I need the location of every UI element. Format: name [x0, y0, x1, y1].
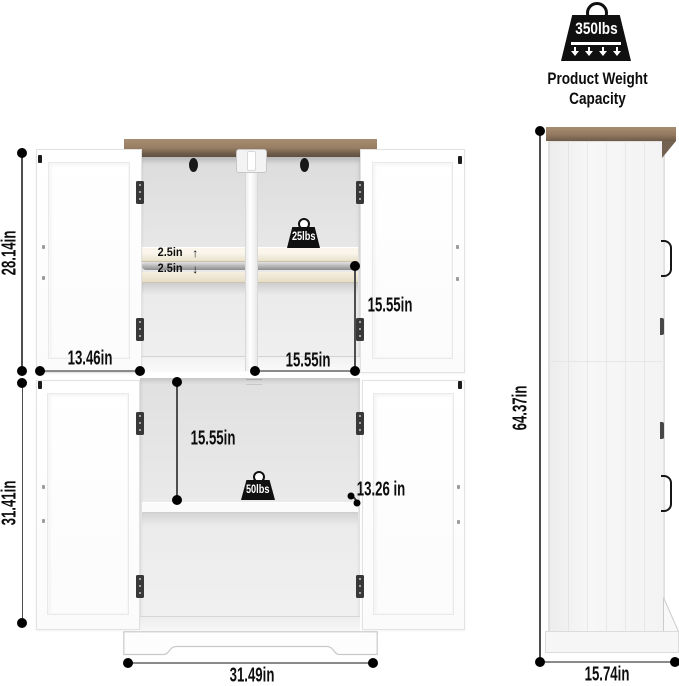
door-catch	[458, 156, 462, 164]
dim-dot	[17, 366, 27, 376]
door-catch	[38, 155, 42, 163]
far-door-handle-icon	[660, 422, 664, 439]
dim-dot	[670, 657, 679, 667]
divider-latch-slot	[247, 151, 256, 171]
upper-right-door-panel	[372, 162, 453, 359]
door-pin-hole	[456, 277, 459, 281]
door-pin-hole	[456, 245, 459, 249]
dim-dot	[17, 378, 27, 388]
side-base-plinth	[545, 631, 679, 653]
dim-upper-compartment-width-label: 15.55in	[274, 350, 342, 373]
dim-dot	[17, 148, 27, 158]
lower-left-door	[36, 380, 140, 630]
side-top-overhang-shadow	[662, 141, 677, 159]
lower-right-door	[362, 380, 465, 630]
hook-slot-icon	[189, 158, 198, 172]
dim-upper-height-label: 28.14in	[0, 219, 22, 287]
shelf-adjust-down-value: 2.5in	[158, 263, 183, 275]
shelf-adjust-down-row: 2.5in ↓	[157, 262, 198, 276]
door-pin-hole	[42, 245, 45, 249]
dim-total-height-label: 64.37in	[510, 374, 533, 442]
dim-dot	[123, 658, 133, 668]
center-divider	[245, 157, 258, 371]
lower-right-door-panel	[373, 393, 454, 615]
door-pin-hole	[42, 276, 45, 280]
upper-left-door-panel	[48, 162, 130, 359]
upper-right-door	[360, 149, 465, 373]
side-base-front-flare	[663, 597, 679, 633]
dim-depth-label: 15.74in	[573, 664, 641, 686]
door-pin-hole	[42, 519, 45, 523]
hinge-icon	[356, 412, 364, 435]
door-catch	[38, 381, 42, 389]
weight-divider	[571, 42, 621, 45]
dim-dot	[535, 126, 545, 136]
dim-dot	[368, 658, 378, 668]
door-pin-hole	[42, 485, 45, 489]
upper-shelf-capacity-value: 25lbs	[292, 227, 316, 248]
shelf-adjust-up-row: 2.5in ↑	[157, 246, 198, 260]
arrow-down-icon: ↓	[192, 262, 198, 276]
arrow-up-icon: ↑	[192, 246, 198, 260]
lower-shelf-shadow	[142, 512, 358, 526]
dim-shelf-depth-label: 13.26 in	[344, 479, 417, 502]
hinge-icon	[136, 575, 144, 598]
dim-dot	[172, 495, 182, 505]
hook-slot-icon	[300, 158, 309, 172]
weight-capacity-badge: 350lbs Product Weight Capacity	[505, 0, 679, 92]
hinge-icon	[136, 412, 144, 435]
lower-latch-mark	[246, 379, 262, 385]
shelf-adjust-up-value: 2.5in	[158, 247, 183, 259]
dim-dot	[17, 618, 27, 628]
weight-icon: 350lbs	[561, 15, 631, 61]
hinge-icon	[356, 318, 364, 341]
dim-cabinet-width-label: 31.49in	[218, 665, 286, 686]
door-handle-icon	[661, 475, 672, 512]
dim-dot	[350, 366, 360, 376]
dim-lower-compartment-height-label: 15.55in	[179, 428, 247, 451]
dim-line	[539, 131, 541, 662]
product-dimension-diagram: 350lbs Product Weight Capacity 2.5in ↑ 2…	[0, 0, 679, 686]
dim-dot	[350, 261, 360, 271]
door-pin-hole	[457, 485, 460, 489]
weight-arrows-icon	[561, 47, 631, 56]
dim-dot	[135, 366, 145, 376]
far-door-handle-icon	[660, 318, 664, 335]
upper-left-door	[36, 149, 142, 373]
weight-capacity-value: 350lbs	[561, 20, 631, 37]
side-wood-top	[546, 127, 676, 141]
hinge-icon	[356, 181, 364, 204]
dim-lower-height-label: 31.41in	[0, 469, 22, 537]
dim-line	[354, 266, 356, 371]
front-base-plinth	[123, 631, 378, 656]
weight-capacity-caption: Product Weight Capacity	[505, 69, 679, 109]
dim-dot	[35, 366, 45, 376]
dim-upper-compartment-height-label: 15.55in	[356, 295, 424, 318]
dim-dot	[250, 366, 260, 376]
side-panel	[548, 141, 665, 634]
hinge-icon	[136, 318, 144, 341]
dim-dot	[535, 657, 545, 667]
lower-left-door-panel	[47, 393, 129, 615]
hinge-icon	[136, 181, 144, 204]
side-mid-line	[549, 361, 662, 362]
door-handle-icon	[661, 240, 672, 277]
lower-shelf-capacity-value: 50lbs	[246, 480, 270, 500]
lower-shelf-weight-icon: 50lbs	[241, 480, 275, 500]
hinge-icon	[356, 575, 364, 598]
dim-door-width-label: 13.46in	[56, 348, 124, 371]
dim-line	[176, 382, 178, 500]
door-pin-hole	[457, 520, 460, 524]
upper-shelf-weight-icon: 25lbs	[287, 227, 320, 248]
door-catch	[458, 381, 462, 389]
dim-line	[22, 383, 24, 623]
dim-dot	[172, 377, 182, 387]
